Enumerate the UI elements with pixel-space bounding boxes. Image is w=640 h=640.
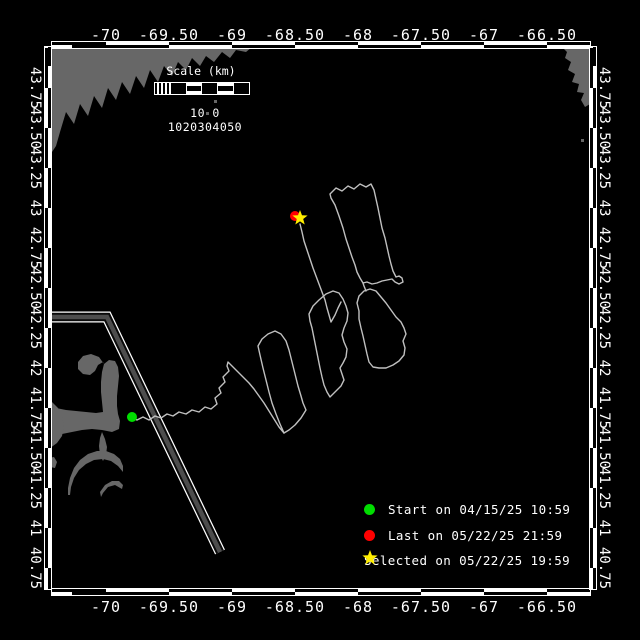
lon-label-bottom: -69.50 [139,598,199,616]
lon-label-bottom: -66.50 [517,598,577,616]
glider-track-connector[interactable] [363,283,366,291]
start-dot-icon [364,504,375,515]
glider-track-loop2[interactable] [309,291,348,397]
glider-track-east-loop[interactable] [330,184,403,284]
land-provincetown-hook [78,354,104,375]
scalebar-segment [202,83,217,94]
lat-label-left: 43.25 [27,147,43,189]
lat-label-left: 42.75 [27,227,43,269]
selected-star-icon [361,549,379,567]
legend-row-last: Last on 05/22/25 21:59 [364,527,562,543]
glider-track-star-leg[interactable] [300,224,341,322]
lat-label-right: 43.25 [596,147,612,189]
lat-label-right: 42 [596,360,612,377]
lat-label-right: 43.75 [596,67,612,109]
lat-label-right: 41.25 [596,467,612,509]
lat-label-left: 43 [27,200,43,217]
lon-label-top: -68 [343,26,373,44]
land-nova-scotia [562,47,590,107]
lon-label-top: -66.50 [517,26,577,44]
map-frame-left [45,47,51,589]
lat-label-left: 41 [27,520,43,537]
lat-label-right: 43.50 [596,107,612,149]
shipping-lane [52,317,220,552]
land-island-arc [68,451,123,495]
lat-label-right: 41 [596,520,612,537]
lat-label-left: 41.50 [27,427,43,469]
lat-label-left: 43.50 [27,107,43,149]
start-position-marker[interactable] [127,412,137,422]
legend-row-selected: Selected on 05/22/25 19:59 [364,552,570,568]
lon-label-top: -67.50 [391,26,451,44]
lon-label-top: -69 [217,26,247,44]
legend-label-selected: Selected on 05/22/25 19:59 [364,553,570,568]
shipping-lane [52,317,220,552]
scalebar [154,82,250,95]
land-island-arc-2 [100,481,123,497]
lat-label-left: 40.75 [27,547,43,589]
scalebar-ticks: 10 0 1020304050 [150,106,260,134]
lat-label-left: 42 [27,360,43,377]
scalebar-title: Scale (km) [154,64,248,78]
lat-label-left: 41.75 [27,387,43,429]
legend-label-last: Last on 05/22/25 21:59 [388,528,562,543]
map-frame-bottom [52,589,590,595]
legend-row-start: Start on 04/15/25 10:59 [364,501,570,517]
lon-label-top: -69.50 [139,26,199,44]
lat-label-right: 42.75 [596,227,612,269]
lat-label-right: 40.75 [596,547,612,589]
lat-label-left: 42.25 [27,307,43,349]
lat-label-right: 41.75 [596,387,612,429]
scalebar-segment [187,83,202,94]
lat-label-left: 42.50 [27,267,43,309]
lat-label-left: 43.75 [27,67,43,109]
map-canvas[interactable] [0,0,640,640]
lon-label-bottom: -69 [217,598,247,616]
legend-label-start: Start on 04/15/25 10:59 [388,502,570,517]
scalebar-segment [171,83,186,94]
glider-track-figure: -70-70-69.50-69.50-69-69-68.50-68.50-68-… [0,0,640,640]
islet [214,100,217,103]
glider-track-loop3[interactable] [357,289,406,368]
lon-label-top: -68.50 [265,26,325,44]
islet [581,139,584,142]
lon-label-top: -67 [469,26,499,44]
lon-label-bottom: -70 [91,598,121,616]
lon-label-top: -70 [91,26,121,44]
lon-label-bottom: -67 [469,598,499,616]
lon-label-bottom: -68 [343,598,373,616]
scalebar-segment [218,83,233,94]
scalebar-segment [234,83,249,94]
scalebar-segment [155,83,170,94]
lat-label-left: 41.25 [27,467,43,509]
lon-label-bottom: -68.50 [265,598,325,616]
lat-label-right: 42.25 [596,307,612,349]
lat-label-right: 42.50 [596,267,612,309]
lat-label-right: 43 [596,200,612,217]
lon-label-bottom: -67.50 [391,598,451,616]
glider-track-loop1[interactable] [258,331,306,433]
shipping-lane [52,317,220,552]
land-maine-coast [52,47,252,152]
last-dot-icon [364,530,375,541]
lat-label-right: 41.50 [596,427,612,469]
